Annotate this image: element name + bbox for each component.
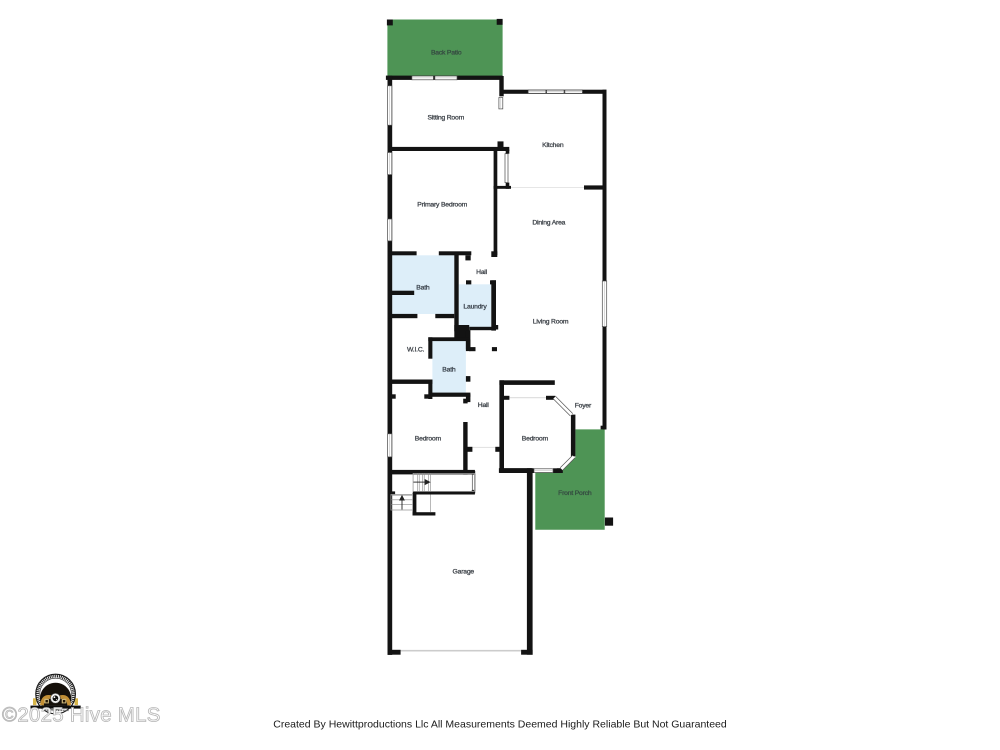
svg-text:Dining Area: Dining Area xyxy=(532,219,565,226)
svg-text:Front Porch: Front Porch xyxy=(558,490,592,497)
svg-text:Hall: Hall xyxy=(476,269,488,276)
svg-text:Kitchen: Kitchen xyxy=(542,142,564,149)
svg-text:W.I.C.: W.I.C. xyxy=(407,346,425,353)
svg-text:Created By Hewittproductions L: Created By Hewittproductions Llc All Mea… xyxy=(273,719,727,731)
svg-text:Back Patio: Back Patio xyxy=(431,50,462,57)
svg-text:Primary Bedroom: Primary Bedroom xyxy=(417,201,467,208)
svg-text:Living Room: Living Room xyxy=(533,318,569,325)
svg-text:Bedroom: Bedroom xyxy=(522,436,549,443)
svg-text:Bath: Bath xyxy=(416,285,430,292)
svg-text:Laundry: Laundry xyxy=(463,304,487,311)
svg-text:Foyer: Foyer xyxy=(575,403,592,410)
svg-text:Hall: Hall xyxy=(478,402,490,409)
svg-text:Bedroom: Bedroom xyxy=(415,436,442,443)
svg-text:Sitting Room: Sitting Room xyxy=(428,115,465,122)
svg-text:©2025 Hive MLS: ©2025 Hive MLS xyxy=(2,704,161,726)
svg-text:Bath: Bath xyxy=(442,367,456,374)
svg-text:Garage: Garage xyxy=(453,569,475,576)
